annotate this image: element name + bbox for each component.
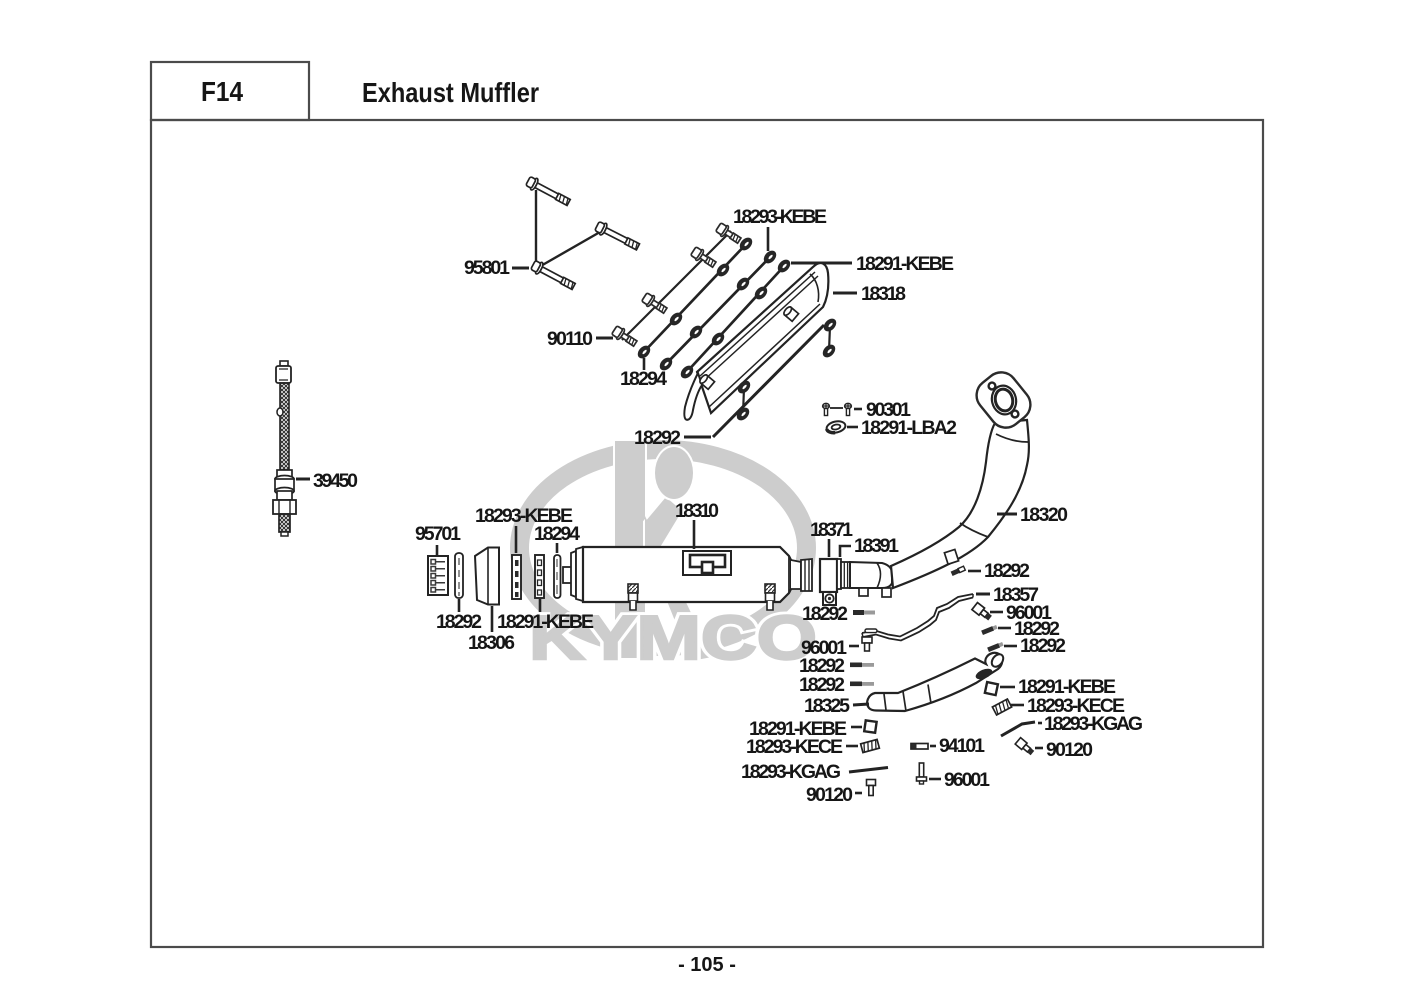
svg-text:18293-KGAG: 18293-KGAG — [741, 761, 841, 783]
svg-text:95701: 95701 — [415, 523, 461, 545]
svg-text:18293-KECE: 18293-KECE — [746, 736, 843, 758]
svg-text:96001: 96001 — [944, 769, 990, 791]
svg-text:18291-LBA2: 18291-LBA2 — [861, 417, 957, 439]
svg-text:90120: 90120 — [806, 784, 853, 806]
svg-text:18292: 18292 — [802, 603, 848, 625]
svg-text:18391: 18391 — [854, 535, 899, 557]
svg-text:18292: 18292 — [1020, 635, 1066, 657]
svg-text:18318: 18318 — [861, 283, 906, 305]
svg-text:39450: 39450 — [313, 470, 358, 492]
svg-text:18291-KEBE: 18291-KEBE — [856, 253, 954, 275]
svg-text:18325: 18325 — [804, 695, 850, 717]
svg-text:18293-KEBE: 18293-KEBE — [733, 206, 827, 228]
svg-text:18292: 18292 — [634, 427, 681, 449]
svg-text:90110: 90110 — [547, 328, 593, 350]
svg-text:18310: 18310 — [675, 500, 719, 522]
svg-text:95801: 95801 — [464, 257, 510, 279]
svg-text:90120: 90120 — [1046, 739, 1093, 761]
svg-text:94101: 94101 — [939, 735, 985, 757]
svg-text:18293-KGAG: 18293-KGAG — [1044, 713, 1143, 735]
svg-text:F14: F14 — [201, 76, 243, 107]
svg-text:18371: 18371 — [810, 519, 853, 541]
svg-text:18294: 18294 — [620, 368, 667, 390]
svg-text:18292: 18292 — [799, 674, 845, 696]
svg-text:18292: 18292 — [984, 560, 1030, 582]
svg-text:18320: 18320 — [1020, 504, 1068, 526]
svg-text:Exhaust Muffler: Exhaust Muffler — [362, 77, 539, 108]
svg-text:18306: 18306 — [468, 632, 515, 654]
svg-text:- 105 -: - 105 - — [678, 954, 736, 976]
svg-text:18291-KEBE: 18291-KEBE — [497, 611, 594, 633]
svg-text:18294: 18294 — [534, 523, 580, 545]
svg-text:18292: 18292 — [436, 611, 482, 633]
